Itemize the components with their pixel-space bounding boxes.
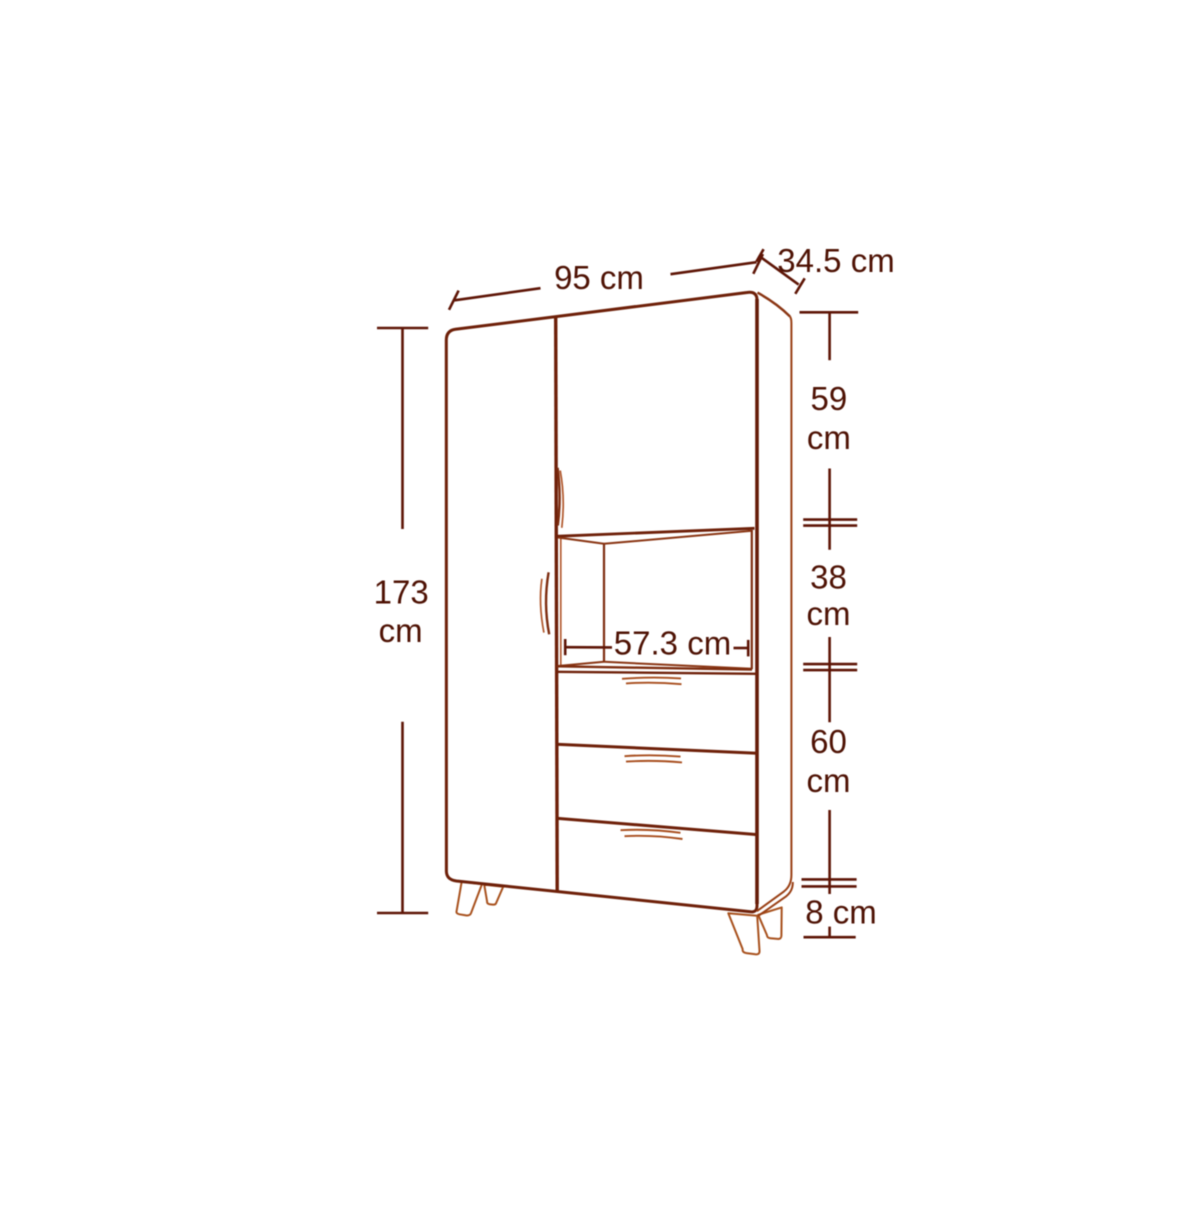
svg-text:38: 38 [810, 559, 847, 596]
svg-text:cm: cm [807, 762, 851, 799]
svg-text:cm: cm [807, 419, 851, 456]
svg-text:173: 173 [374, 574, 429, 611]
svg-text:59: 59 [811, 380, 848, 417]
svg-text:57.3 cm: 57.3 cm [614, 625, 731, 662]
svg-text:95 cm: 95 cm [554, 259, 644, 296]
svg-text:cm: cm [379, 612, 423, 649]
svg-text:60: 60 [810, 723, 847, 760]
svg-text:34.5 cm: 34.5 cm [777, 242, 894, 279]
svg-text:cm: cm [807, 595, 851, 632]
svg-text:8 cm: 8 cm [805, 894, 877, 931]
